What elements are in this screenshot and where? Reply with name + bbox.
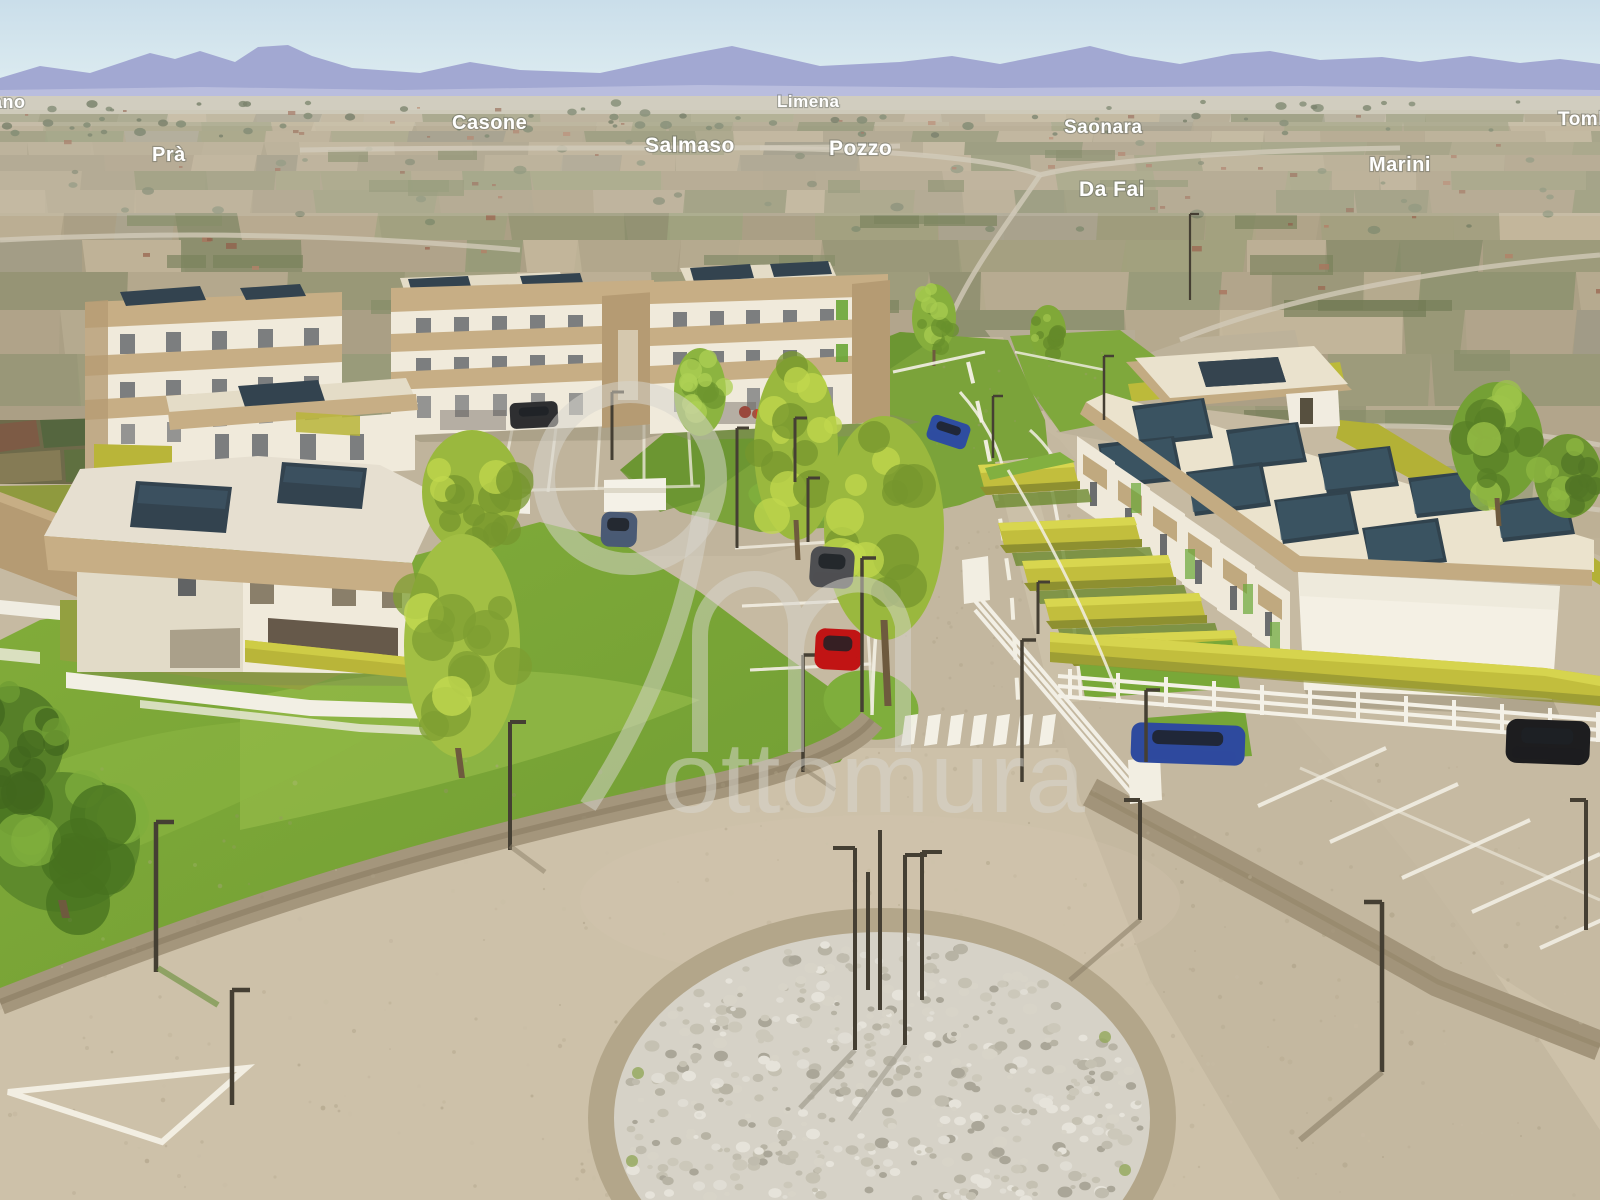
svg-text:Casone: Casone bbox=[452, 112, 527, 134]
svg-text:Tombelle: Tombelle bbox=[1558, 109, 1600, 130]
svg-text:Da Fai: Da Fai bbox=[1079, 178, 1145, 201]
svg-text:Limena: Limena bbox=[777, 92, 840, 111]
svg-text:Prà: Prà bbox=[152, 144, 186, 166]
svg-text:ottomura: ottomura bbox=[661, 722, 1085, 834]
svg-text:Pozzo: Pozzo bbox=[829, 137, 892, 160]
svg-text:ano: ano bbox=[0, 92, 26, 112]
svg-text:Salmaso: Salmaso bbox=[645, 134, 735, 157]
svg-text:Marini: Marini bbox=[1369, 154, 1431, 176]
svg-text:Saonara: Saonara bbox=[1064, 117, 1142, 138]
